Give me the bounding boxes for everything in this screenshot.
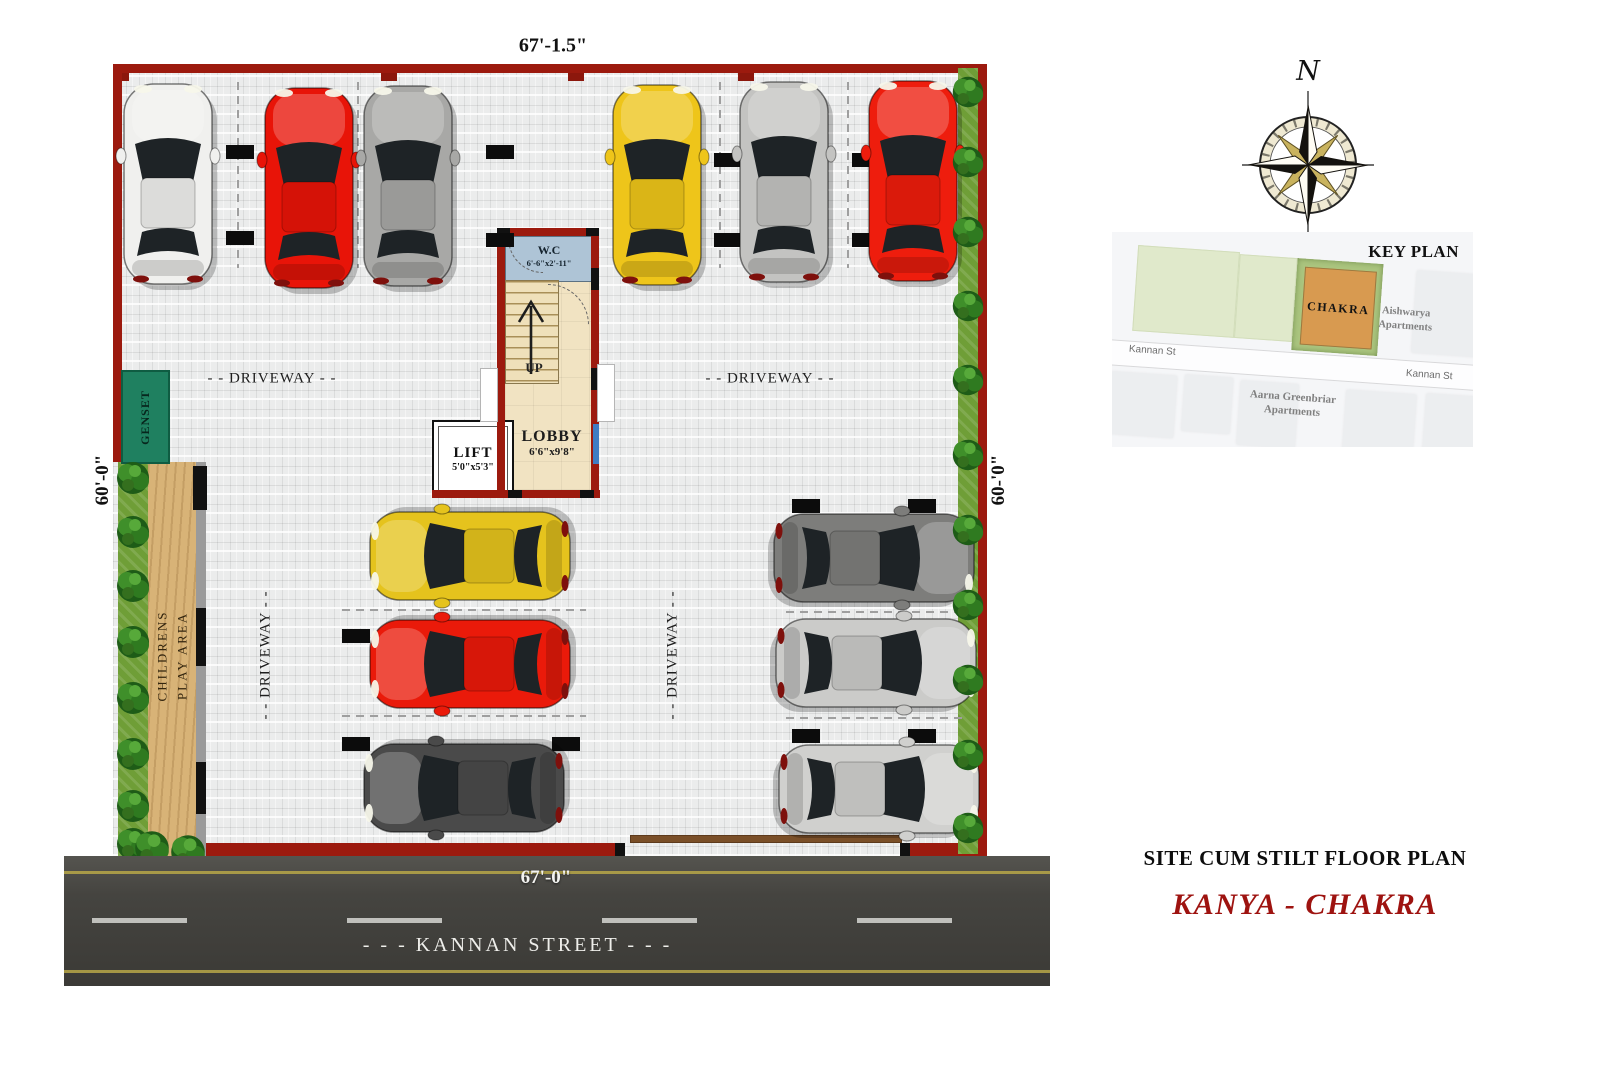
project-name: KANYA - CHAKRA xyxy=(1125,888,1485,922)
neighbor-east-label: Aishwarya Apartments xyxy=(1363,303,1449,336)
gate-post xyxy=(615,843,625,856)
key-plan-map: CHAKRA Aishwarya Apartments Kannan St Ka… xyxy=(1112,232,1473,447)
key-plan-title: KEY PLAN xyxy=(1368,242,1459,262)
dimension-bottom: 67'-0" xyxy=(521,867,572,889)
wall-corner xyxy=(586,228,599,236)
entry-gate-bar xyxy=(630,835,902,843)
lobby-label: LOBBY 6'6"x9'8" xyxy=(512,428,592,458)
genset-label: GENSET xyxy=(138,390,153,445)
door-opening-left xyxy=(480,368,498,422)
compass-star-graphic xyxy=(1238,85,1378,241)
driveway-label-nw: - - DRIVEWAY - - xyxy=(207,371,336,388)
wall-corner xyxy=(497,228,510,236)
dimension-left: 60'-0" xyxy=(92,455,114,506)
lane-dashes xyxy=(92,918,999,923)
pillar xyxy=(196,762,206,814)
grass-strip-left xyxy=(118,462,148,856)
wall-corner xyxy=(508,490,522,498)
wall-pillar xyxy=(568,73,584,81)
wall-pillar xyxy=(738,73,754,81)
lobby-entry-door xyxy=(593,424,599,464)
core-wall xyxy=(497,228,599,236)
door-opening-right xyxy=(597,364,615,422)
boundary-wall-bottom-left xyxy=(198,843,625,856)
genset-room: GENSET xyxy=(121,370,170,464)
compass-rose: N xyxy=(1238,58,1378,244)
key-plan-building xyxy=(1112,371,1177,437)
up-label: UP xyxy=(514,360,554,376)
dimension-top: 67'-1.5" xyxy=(519,35,587,58)
street-name: - - - KANNAN STREET - - - xyxy=(64,934,971,957)
driveway-label-sw: - - DRIVEWAY - - xyxy=(258,590,275,719)
key-plan-site-label: CHAKRA xyxy=(1307,298,1370,317)
site-plan: CHILDRENS PLAY AREA GENSET W.C 6'-6"x2'-… xyxy=(113,64,987,856)
wall-corner xyxy=(591,268,599,290)
core-block: W.C 6'-6"x2'-11" UP LOBBY 6'6"x9'8" LIFT… xyxy=(432,228,600,498)
key-plan: CHAKRA Aishwarya Apartments Kannan St Ka… xyxy=(1112,232,1473,447)
driveway-label-se: - - DRIVEWAY - - xyxy=(665,590,682,719)
north-label: N xyxy=(1238,58,1378,85)
grass-strip-right xyxy=(958,68,978,854)
gate-post xyxy=(900,843,910,856)
boundary-wall-right xyxy=(978,64,987,856)
key-plan-plot xyxy=(1234,254,1298,342)
key-plan-plot xyxy=(1132,245,1240,338)
wall-corner xyxy=(580,490,594,498)
key-plan-building xyxy=(1422,393,1473,447)
sheet-title: SITE CUM STILT FLOOR PLAN xyxy=(1125,846,1485,871)
play-area-label: CHILDRENS PLAY AREA xyxy=(153,611,192,702)
dimension-right: 60-'0" xyxy=(988,455,1010,506)
driveway-label-ne: - - DRIVEWAY - - xyxy=(705,371,834,388)
pillar xyxy=(196,608,206,666)
core-wall xyxy=(497,236,505,490)
floor-plan-sheet: CHILDRENS PLAY AREA GENSET W.C 6'-6"x2'-… xyxy=(0,0,1600,1066)
boundary-wall-top xyxy=(113,64,987,73)
wall-pillar xyxy=(381,73,397,81)
road-edge-line xyxy=(64,970,1050,973)
pillar xyxy=(193,466,207,510)
